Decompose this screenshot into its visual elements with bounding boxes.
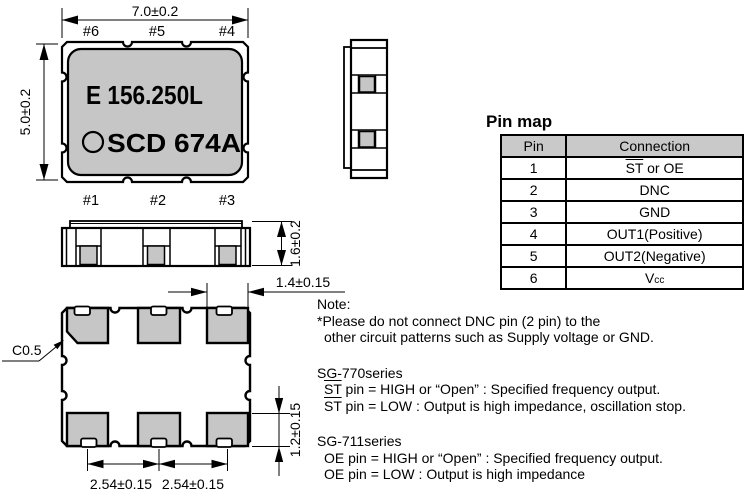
marking-line1: E 156.250L [86, 80, 203, 110]
dim-thickness-label: 1.6±0.2 [287, 220, 303, 267]
front-pad-left [80, 246, 97, 265]
front-pad-right [219, 246, 236, 265]
front-view [62, 221, 250, 266]
side-view [344, 40, 387, 178]
pin-label-2: #2 [150, 193, 166, 209]
pin-map-row: 4OUT1(Positive) [501, 223, 743, 245]
overlined-text: ST [324, 398, 342, 414]
pin-map-row: 2DNC [501, 179, 743, 201]
side-view-body [351, 40, 387, 178]
pin-map-header-row: Pin Connection [501, 135, 743, 157]
pin-label-4: #4 [219, 24, 235, 40]
dim-pitch-right-label: 2.54±0.15 [162, 476, 224, 492]
pin-label-6: #6 [83, 24, 99, 40]
note-line: ST pin = HIGH or “Open” : Specified freq… [324, 381, 743, 398]
pin-number-cell: 3 [501, 201, 566, 223]
notes-block: Note: *Please do not connect DNC pin (2 … [317, 296, 743, 483]
pin-number-cell: 5 [501, 245, 566, 267]
dimension-corner-chamfer: C0.5 [2, 340, 64, 361]
pin-number-cell: 4 [501, 223, 566, 245]
note-line: *Please do not connect DNC pin (2 pin) t… [317, 313, 743, 330]
connection-cell: OUT1(Positive) [566, 223, 743, 245]
dim-chamfer-label: C0.5 [12, 342, 42, 358]
note-line: OE pin = LOW : Output is high impedance [324, 466, 743, 483]
pin-map-row: 6Vcc [501, 267, 743, 289]
side-pad-lower [360, 132, 375, 148]
note-line: other circuit patterns such as Supply vo… [324, 329, 743, 346]
dim-pad-width-label: 1.4±0.15 [276, 274, 331, 290]
overlined-text: ST [324, 381, 342, 397]
dimension-body-height: 5.0±0.2 [17, 44, 58, 180]
pin-map-row: 5OUT2(Negative) [501, 245, 743, 267]
top-view: E 156.250L SCD 674A #6 #5 #4 #1 #2 #3 [62, 24, 248, 209]
dimension-thickness: 1.6±0.2 [252, 220, 303, 267]
bottom-view [62, 307, 250, 448]
note-line: OE pin = HIGH or “Open” : Specified freq… [324, 450, 743, 467]
marking-line2: SCD 674A [107, 128, 241, 158]
notes-heading: Note: [317, 296, 743, 313]
pin-column-header: Pin [501, 135, 566, 157]
connection-cell: ST or OE [566, 157, 743, 179]
styled-text: cc [654, 275, 664, 286]
side-pad-upper [360, 77, 375, 93]
pin-number-cell: 6 [501, 267, 566, 289]
connection-cell: Vcc [566, 267, 743, 289]
note-line: SG-770series [317, 365, 743, 382]
note-line: ST pin = LOW : Output is high impedance,… [324, 398, 743, 415]
dimension-pad-height: 1.2±0.15 [252, 386, 303, 476]
connection-cell: GND [566, 201, 743, 223]
pin-map-title: Pin map [486, 112, 552, 132]
connection-column-header: Connection [566, 135, 743, 157]
pin-number-cell: 1 [501, 157, 566, 179]
pin-number-cell: 2 [501, 179, 566, 201]
dim-body-width-label: 7.0±0.2 [132, 3, 179, 19]
pin-label-5: #5 [149, 24, 165, 40]
pin-label-3: #3 [219, 193, 235, 209]
connection-cell: OUT2(Negative) [566, 245, 743, 267]
dim-pitch-left-label: 2.54±0.15 [90, 476, 152, 492]
note-line: SG-711series [317, 433, 743, 450]
connection-cell: DNC [566, 179, 743, 201]
overlined-text: ST [626, 160, 644, 176]
pin-map-row: 3GND [501, 201, 743, 223]
pin-label-1: #1 [83, 193, 99, 209]
dimension-pad-pitch: 2.54±0.15 2.54±0.15 [88, 449, 228, 492]
package-drawing-page: E 156.250L SCD 674A #6 #5 #4 #1 #2 #3 7.… [0, 0, 744, 494]
pin-map-row: 1ST or OE [501, 157, 743, 179]
pin-map-table: Pin Connection 1ST or OE2DNC3GND4OUT1(Po… [500, 134, 744, 290]
front-pad-center [148, 246, 165, 265]
dim-pad-height-label: 1.2±0.15 [287, 403, 303, 458]
dim-body-height-label: 5.0±0.2 [17, 88, 33, 135]
